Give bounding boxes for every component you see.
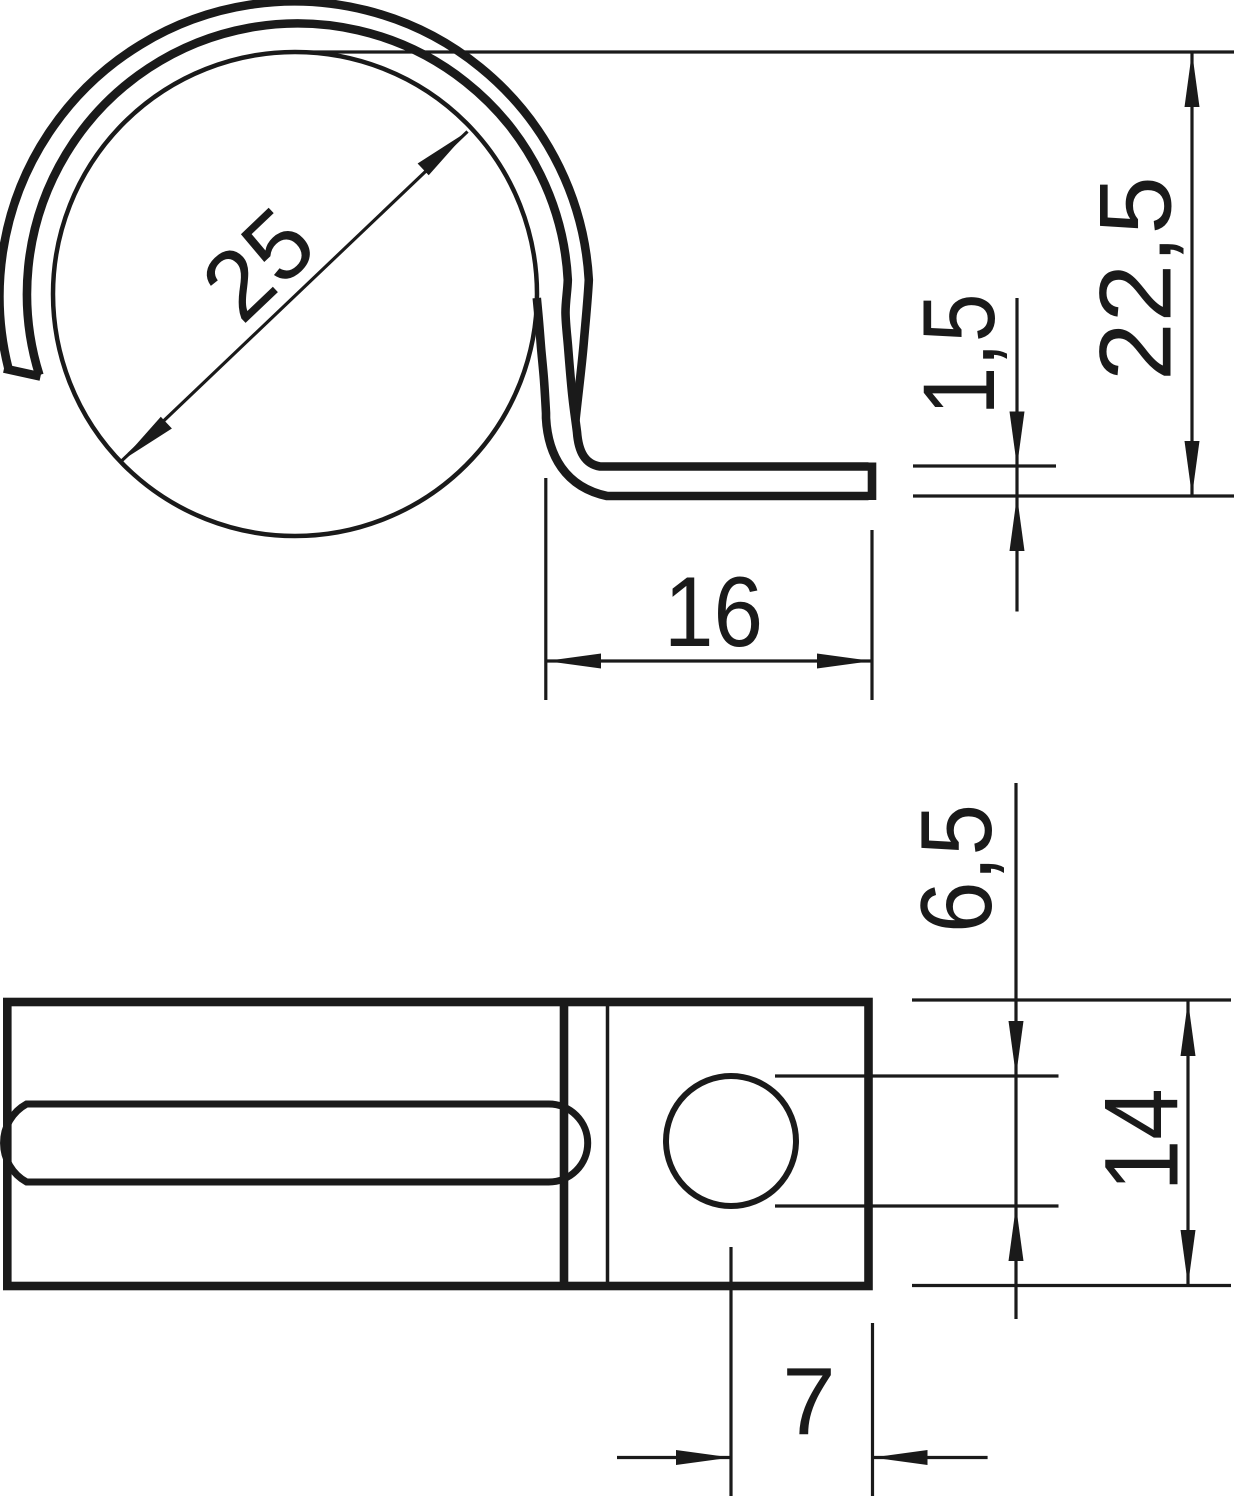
svg-text:6,5: 6,5 <box>901 804 1013 933</box>
svg-text:22,5: 22,5 <box>1079 176 1193 381</box>
svg-text:16: 16 <box>664 556 763 667</box>
svg-text:14: 14 <box>1084 1088 1201 1191</box>
svg-text:7: 7 <box>782 1348 835 1455</box>
svg-text:1,5: 1,5 <box>902 294 1016 416</box>
